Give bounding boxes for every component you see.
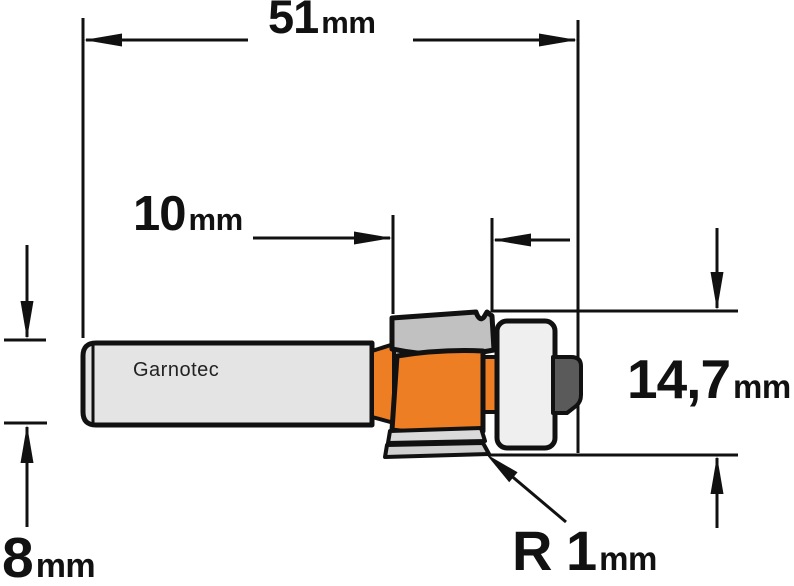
ball-bearing [497, 321, 555, 448]
label-shank-diameter: 8mm [2, 530, 95, 586]
radius-leader [486, 454, 566, 522]
leader-line [508, 473, 566, 522]
cut-diameter-value: 14,7 [627, 352, 730, 407]
arrowhead-up-icon [711, 456, 724, 494]
overall-length-value: 51 [268, 0, 318, 40]
cutter-bottom-edge-1 [388, 428, 485, 443]
router-bit-drawing [0, 0, 794, 586]
shank-diameter-unit: mm [36, 549, 95, 583]
technical-diagram-canvas: 51mm 10mm 14,7mm 8mm R 1mm Garnotec [0, 0, 794, 586]
cutter-face [392, 351, 483, 434]
corner-radius-unit: mm [599, 542, 657, 575]
neck-cone [372, 344, 394, 423]
arrowhead-up-icon [21, 425, 34, 463]
arrowhead-down-icon [711, 272, 724, 310]
label-corner-radius: R 1mm [512, 523, 657, 579]
dim-shank-diameter [4, 245, 47, 527]
shank-diameter-value: 8 [2, 530, 33, 586]
cut-length-unit: mm [189, 204, 243, 235]
label-cut-length: 10mm [133, 190, 243, 239]
cutter-bottom-edge-2 [385, 443, 489, 457]
corner-radius-value: R 1 [512, 523, 596, 579]
router-bit [83, 312, 581, 457]
arrowhead-right-icon [354, 232, 392, 245]
arrowhead-right-icon [539, 34, 577, 47]
cut-length-value: 10 [133, 190, 186, 239]
arrowhead-left-icon [84, 34, 122, 47]
label-cut-diameter: 14,7mm [627, 352, 791, 407]
dim-cut-length [253, 215, 570, 314]
arrowhead-down-icon [21, 301, 34, 339]
shank-body [83, 343, 372, 425]
cut-diameter-unit: mm [733, 370, 791, 403]
arrowhead-left-icon [493, 234, 531, 247]
retaining-nut [553, 357, 581, 413]
overall-length-unit: mm [321, 7, 375, 38]
brand-text: Garnotec [133, 360, 219, 380]
label-overall-length: 51mm [268, 0, 375, 40]
